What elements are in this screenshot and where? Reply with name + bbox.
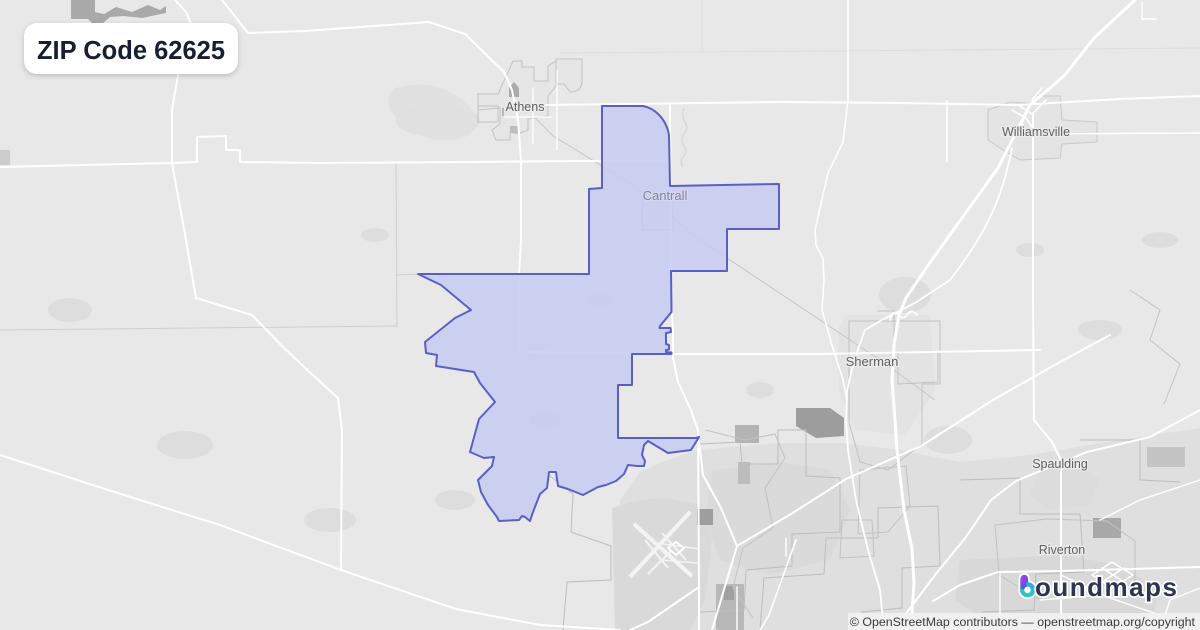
svg-text:Williamsville: Williamsville [1002, 125, 1070, 139]
svg-text:Riverton: Riverton [1039, 543, 1086, 557]
svg-text:oundmaps: oundmaps [1035, 572, 1178, 602]
svg-text:Spaulding: Spaulding [1032, 457, 1088, 471]
svg-text:Cantrall: Cantrall [643, 188, 688, 203]
svg-text:Sherman: Sherman [846, 354, 899, 369]
svg-text:© OpenStreetMap contributors —: © OpenStreetMap contributors — openstree… [850, 615, 1196, 629]
svg-text:Athens: Athens [506, 100, 545, 114]
